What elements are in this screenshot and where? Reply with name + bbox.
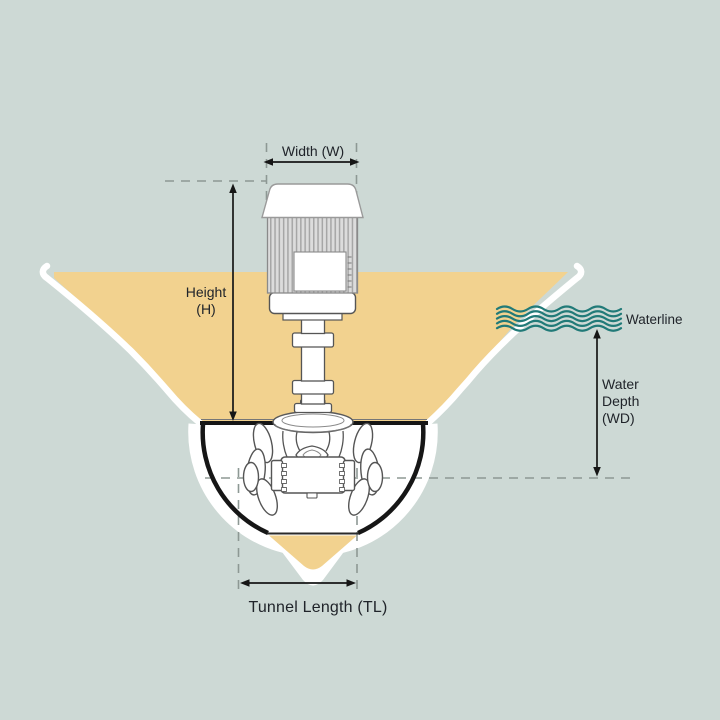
width-label: Width (W) xyxy=(258,143,368,159)
thruster-gearbox xyxy=(272,457,355,498)
height-label: Height (H) xyxy=(174,284,238,318)
gearbox-right-flange xyxy=(344,461,355,491)
gearbox-left-flange xyxy=(272,461,283,491)
width-arrowhead-right xyxy=(350,158,360,166)
motor-nameplate xyxy=(294,252,346,291)
gearbox-body xyxy=(281,457,345,493)
width-dimension xyxy=(264,158,360,166)
motor-cap xyxy=(262,184,363,218)
right-prop-hub xyxy=(368,463,383,492)
water-depth-dimension xyxy=(593,329,601,477)
electric-motor xyxy=(262,184,363,320)
tunnel-length-dimension xyxy=(240,579,356,587)
height-arrowhead-top xyxy=(229,184,237,194)
shaft-column-mid xyxy=(302,347,325,382)
water-depth-label: Water Depth (WD) xyxy=(602,376,639,427)
water-depth-arrowhead-bottom xyxy=(593,467,601,477)
water-depth-arrowhead-top xyxy=(593,329,601,339)
shaft-column-lower xyxy=(302,394,325,405)
shaft-base-plate xyxy=(295,404,332,413)
tunnel-length-arrowhead-left xyxy=(240,579,250,587)
width-arrowhead-left xyxy=(264,158,274,166)
shaft-neck xyxy=(302,320,325,334)
bow-thruster-diagram: Width (W) Height (H) Waterline Water Dep… xyxy=(0,0,720,720)
motor-base-flange xyxy=(270,293,356,314)
gearbox-drain-plug xyxy=(307,493,317,498)
shaft-flange-lower xyxy=(293,381,334,395)
waterline-label: Waterline xyxy=(626,312,683,327)
tunnel-length-arrowhead-right xyxy=(347,579,357,587)
left-prop-hub xyxy=(244,463,259,492)
shaft-flange-upper xyxy=(293,333,334,347)
tunnel-length-label: Tunnel Length (TL) xyxy=(218,599,418,617)
